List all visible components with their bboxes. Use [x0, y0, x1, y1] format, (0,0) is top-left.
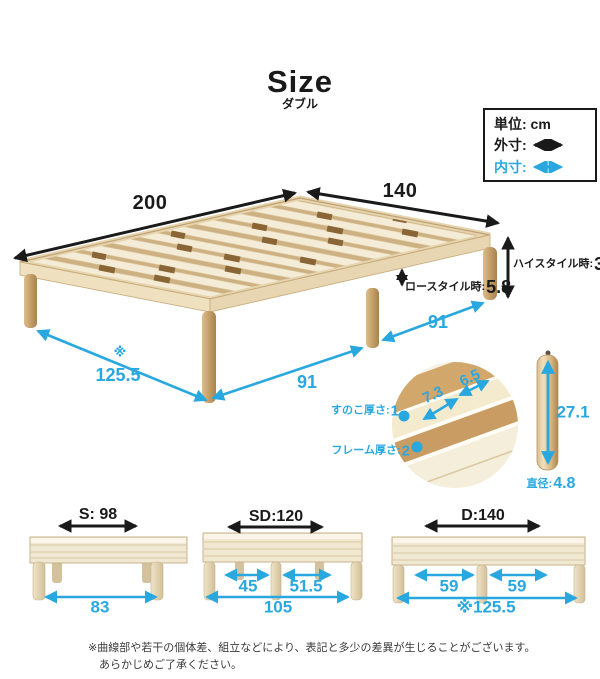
legend-outer-label: 外寸: — [494, 135, 527, 155]
footnote-line-2: あらかじめご了承ください。 — [99, 657, 535, 674]
frame-thickness-value: 2 — [402, 444, 410, 459]
legend-unit-row: 単位: cm — [494, 114, 589, 134]
bed-single — [30, 526, 187, 600]
dim-inner-length-125-5: 125.5 — [95, 366, 140, 384]
dim-width-140: 140 — [383, 181, 418, 201]
footnote-line-1: ※曲線部や若干の個体差、組立などにより、表記と多少の差異が生じることがございます… — [88, 640, 535, 657]
low-style-label: ロースタイル時: — [405, 282, 485, 293]
dim-low-style-height: ロースタイル時: 5.8 — [405, 278, 511, 296]
variant-sd-inner-left: 45 — [239, 578, 258, 595]
variant-sd-overall: 105 — [264, 599, 292, 616]
variant-s-overall: 83 — [91, 599, 110, 616]
variant-d-inner-right: 59 — [508, 578, 527, 595]
frame-thickness-callout: フレーム厚さ: 2 — [331, 444, 410, 459]
blue-double-arrow-icon — [531, 161, 565, 173]
legend-box: 単位: cm 外寸: 内寸: — [483, 108, 597, 182]
dim-leg-height-27-1: 27.1 — [556, 404, 589, 421]
variant-sd-inner-right: 51.5 — [289, 578, 322, 595]
size-diagram-page: Size ダブル 単位: cm 外寸: 内寸: — [0, 0, 600, 679]
dim-high-style-height: ハイスタイル時: 33 — [513, 255, 600, 273]
legend-outer-row: 外寸: — [494, 135, 589, 155]
variant-sd-name: SD:120 — [249, 509, 303, 525]
footnote: ※曲線部や若干の個体差、組立などにより、表記と多少の差異が生じることがございます… — [88, 640, 535, 673]
main-bed-illustration — [0, 185, 600, 495]
legend-unit-label: 単位: cm — [494, 114, 551, 134]
leg-diameter-callout: 直径: 4.8 — [527, 476, 576, 492]
leg-diameter-label: 直径: — [527, 479, 553, 490]
leg-diameter-value: 4.8 — [553, 476, 575, 492]
legend-inner-label: 内寸: — [494, 157, 527, 177]
bed-semi-double — [203, 527, 362, 600]
slat-thickness-value: 1 — [391, 404, 399, 419]
bed-double — [392, 526, 585, 603]
high-style-label: ハイスタイル時: — [513, 259, 593, 270]
dim-leg-span-front-91: 91 — [297, 373, 317, 391]
slat-thickness-label: すのこ厚さ: — [331, 406, 390, 417]
black-double-arrow-icon — [531, 139, 565, 151]
dim-leg-span-side-91: 91 — [428, 313, 448, 331]
variant-d-overall: ※125.5 — [456, 599, 515, 616]
legend-inner-row: 内寸: — [494, 157, 589, 177]
frame-thickness-label: フレーム厚さ: — [331, 446, 400, 457]
page-subtitle: ダブル — [282, 95, 318, 112]
inner-length-note-mark: ※ — [114, 346, 127, 359]
variant-s-name: S: 98 — [79, 507, 117, 523]
variant-d-inner-left: 59 — [440, 578, 459, 595]
low-style-value: 5.8 — [486, 278, 511, 296]
slat-thickness-callout: すのこ厚さ: 1 — [331, 404, 399, 419]
variant-d-name: D:140 — [461, 508, 505, 524]
high-style-value: 33 — [594, 255, 600, 273]
dim-length-200: 200 — [133, 193, 168, 213]
